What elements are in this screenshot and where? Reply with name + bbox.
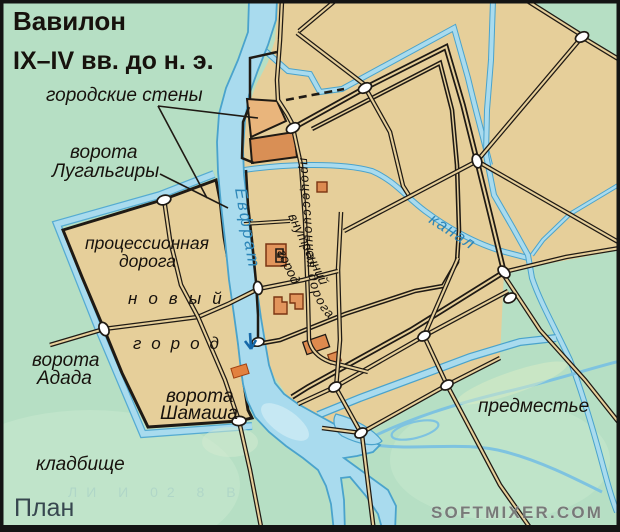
svg-text:предместье: предместье: [478, 396, 589, 417]
svg-text:Шамаша: Шамаша: [160, 403, 238, 424]
svg-text:Вавилон: Вавилон: [13, 6, 126, 36]
svg-text:городские стены: городские стены: [46, 85, 203, 106]
svg-text:город: город: [133, 334, 229, 353]
svg-text:SOFTMIXER.COM: SOFTMIXER.COM: [431, 503, 603, 522]
svg-text:дорога: дорога: [119, 251, 176, 271]
svg-text:План: План: [14, 494, 74, 522]
svg-text:ЛИ И 02 8 В: ЛИ И 02 8 В: [68, 484, 245, 500]
svg-text:кладбище: кладбище: [36, 454, 125, 475]
svg-text:ворота: ворота: [70, 142, 137, 163]
svg-text:IX–IV вв. до н. э.: IX–IV вв. до н. э.: [13, 47, 214, 75]
svg-text:Лугальгиры: Лугальгиры: [50, 161, 159, 182]
svg-text:новый: новый: [128, 289, 233, 308]
svg-text:процессионная: процессионная: [85, 233, 209, 253]
svg-text:Адада: Адада: [36, 368, 92, 389]
